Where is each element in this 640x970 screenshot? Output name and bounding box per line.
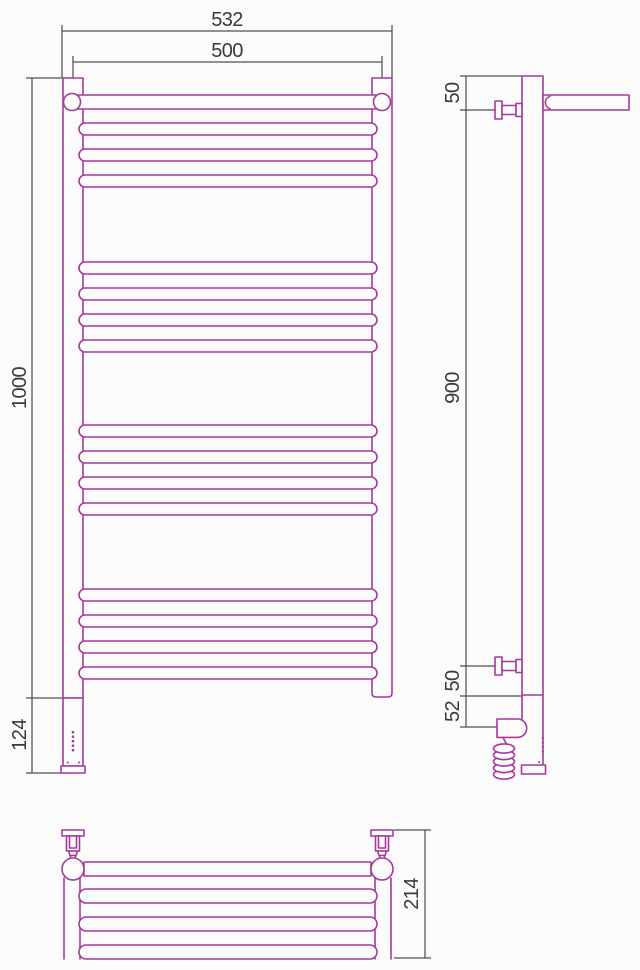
rung	[79, 503, 377, 515]
coil-loop	[494, 744, 515, 753]
rung	[79, 262, 377, 274]
power-cable-coil	[494, 744, 515, 779]
led-dot	[542, 737, 544, 739]
bracket-collar	[516, 104, 522, 117]
bracket-stem-inner	[379, 836, 386, 848]
side-view: 50 900 50 52	[442, 76, 629, 779]
right-bracket-boss	[374, 94, 391, 111]
left-stand-tube	[63, 78, 83, 698]
heater-housing-side	[497, 719, 527, 737]
rung	[79, 425, 377, 437]
top-wall-bracket	[495, 101, 522, 119]
left-stand-circle	[62, 858, 84, 880]
rung-top-view	[79, 889, 377, 903]
dim-label-top-offset: 50	[442, 82, 464, 104]
dim-label-heater-offset: 52	[442, 701, 464, 723]
top-rail-bar-top-view	[84, 862, 371, 876]
front-rungs	[79, 123, 377, 679]
dim-label-mount-span: 900	[442, 372, 464, 404]
front-view: 532 500 1000 124	[9, 9, 392, 773]
top-rail-bar	[72, 95, 382, 109]
rung	[79, 340, 377, 352]
left-bracket-boss	[64, 94, 81, 111]
top-view: 214	[62, 830, 431, 959]
rung	[79, 175, 377, 187]
rung-top-view	[79, 917, 377, 931]
screw-dot	[538, 761, 540, 763]
tube-foot	[522, 765, 546, 774]
led-dot	[72, 736, 74, 738]
bottom-wall-bracket	[495, 657, 522, 675]
left-bracket-top-view	[62, 830, 84, 859]
bracket-stem	[502, 662, 516, 671]
heater-flange-front	[61, 766, 85, 773]
rung	[79, 451, 377, 463]
bracket-stem	[502, 106, 516, 115]
right-stand-tube	[372, 78, 392, 697]
rung-top-view	[79, 945, 377, 959]
dim-label-height: 1000	[9, 366, 31, 409]
dim-label-overall-width: 532	[211, 9, 243, 31]
dim-label-mount-width: 500	[211, 40, 243, 62]
rung	[79, 615, 377, 627]
rung	[79, 149, 377, 161]
rung	[79, 314, 377, 326]
led-dot	[542, 751, 544, 753]
led-dot	[72, 749, 74, 751]
bracket-plate	[495, 657, 502, 675]
led-dot	[72, 731, 74, 733]
rung	[79, 288, 377, 300]
led-dot	[72, 740, 74, 742]
top-rail-bar-side	[543, 95, 629, 110]
rung	[79, 123, 377, 135]
rung	[79, 667, 377, 679]
rung	[79, 589, 377, 601]
rung	[79, 641, 377, 653]
stand-tube-side	[522, 76, 543, 695]
dim-label-depth: 214	[401, 878, 423, 910]
right-bracket-top-view	[371, 830, 393, 859]
screw-dot	[78, 762, 80, 764]
led-dot	[72, 745, 74, 747]
side-dimension-lines	[460, 76, 522, 727]
bracket-stem-inner	[70, 836, 77, 848]
dimension-line-height	[26, 78, 67, 773]
rung	[79, 477, 377, 489]
screw-dot	[67, 762, 69, 764]
bracket-plate	[371, 830, 393, 836]
dim-label-heater-section: 124	[9, 719, 31, 751]
bracket-collar	[516, 660, 522, 673]
drawing-canvas: 532 500 1000 124	[0, 0, 640, 970]
led-dot	[542, 742, 544, 744]
right-stand-circle	[371, 858, 393, 880]
dim-label-bottom-offset: 50	[442, 670, 464, 692]
led-dot	[542, 746, 544, 748]
bracket-plate	[495, 101, 502, 119]
bracket-plate	[62, 830, 84, 836]
